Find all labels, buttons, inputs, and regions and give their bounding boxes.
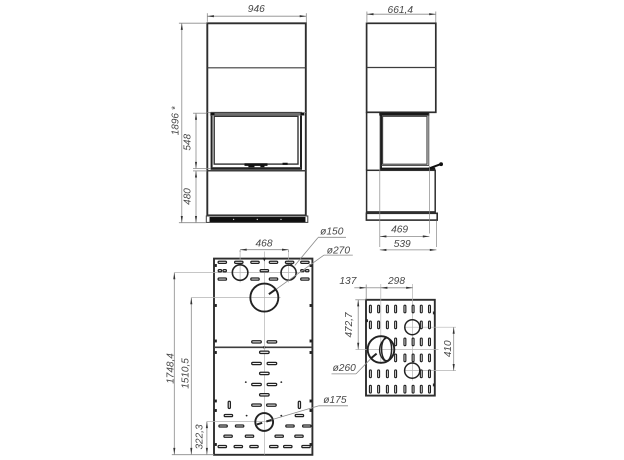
svg-text:661,4: 661,4 [388, 5, 414, 16]
svg-text:1896 *: 1896 * [171, 105, 182, 135]
svg-text:472,7: 472,7 [344, 312, 355, 337]
svg-text:ø260: ø260 [333, 363, 357, 374]
svg-text:946: 946 [248, 4, 265, 15]
svg-text:ø175: ø175 [323, 395, 347, 406]
svg-text:548: 548 [182, 134, 193, 151]
svg-text:322,3: 322,3 [194, 424, 205, 449]
svg-text:539: 539 [394, 239, 411, 250]
svg-text:1748,4: 1748,4 [166, 353, 177, 384]
svg-text:298: 298 [387, 276, 405, 287]
svg-text:137: 137 [339, 276, 356, 287]
svg-text:410: 410 [443, 340, 454, 357]
svg-text:468: 468 [256, 238, 273, 249]
svg-text:469: 469 [391, 225, 408, 236]
svg-text:ø150: ø150 [320, 227, 344, 238]
svg-text:1510,5: 1510,5 [180, 358, 191, 389]
svg-text:480: 480 [182, 188, 193, 205]
